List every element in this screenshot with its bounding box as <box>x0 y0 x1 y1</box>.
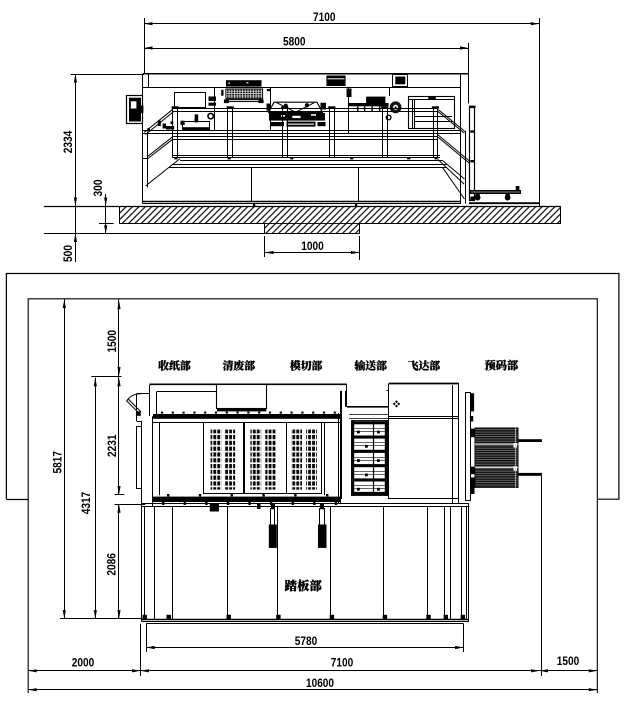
svg-text:2086: 2086 <box>104 553 118 576</box>
svg-text:2000: 2000 <box>72 655 95 669</box>
svg-text:1500: 1500 <box>105 330 119 353</box>
svg-text:7100: 7100 <box>313 10 336 24</box>
svg-text:2231: 2231 <box>105 434 119 457</box>
svg-text:10600: 10600 <box>306 676 334 690</box>
svg-text:1000: 1000 <box>301 239 324 253</box>
svg-text:2334: 2334 <box>61 130 75 153</box>
svg-text:7100: 7100 <box>331 655 354 669</box>
svg-text:1500: 1500 <box>557 654 580 668</box>
svg-text:5800: 5800 <box>283 34 306 48</box>
svg-text:500: 500 <box>61 245 75 262</box>
svg-text:4317: 4317 <box>79 491 93 514</box>
svg-text:5817: 5817 <box>50 451 64 474</box>
svg-text:300: 300 <box>91 179 105 196</box>
svg-text:5780: 5780 <box>295 634 318 648</box>
